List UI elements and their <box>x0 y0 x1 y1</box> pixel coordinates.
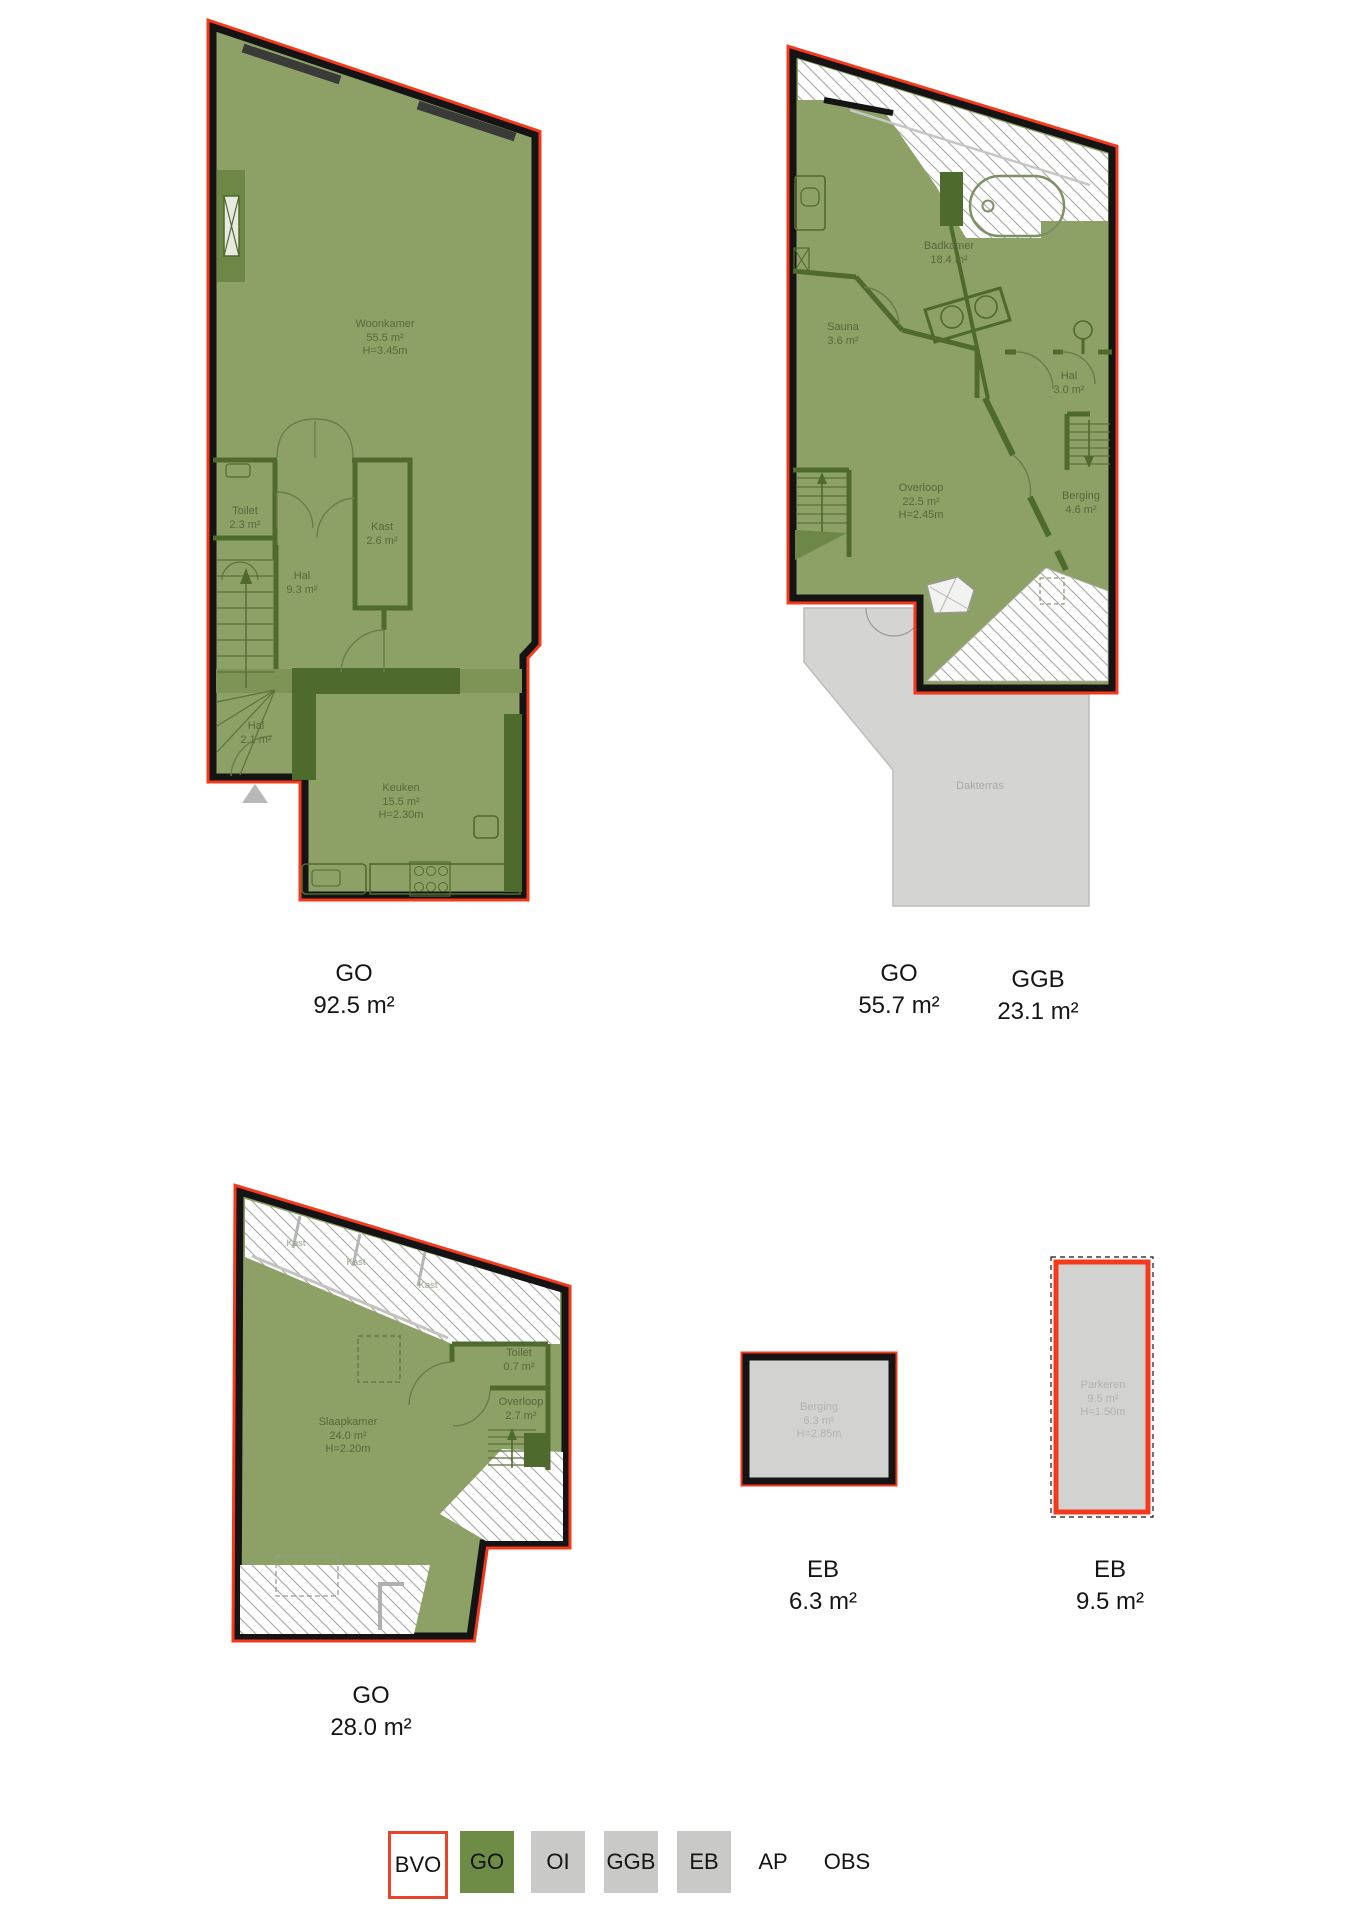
room-label-parkeren: Parkeren 9.5 m² H=1.50m <box>1081 1379 1126 1420</box>
legend-item-obs: OBS <box>820 1831 874 1893</box>
room-label-berging-2: Berging 6.3 m² H=2.85m <box>797 1401 842 1442</box>
legend-item-oi: OI <box>531 1831 585 1893</box>
room-label-keuken: Keuken 15.5 m² H=2.30m <box>379 782 424 823</box>
legend-item-go: GO <box>460 1831 514 1893</box>
room-label-hal-1: Hal 9.3 m² <box>286 570 317 597</box>
legend-item-ggb: GGB <box>604 1831 658 1893</box>
room-label-berging-1: Berging 4.6 m² <box>1062 490 1100 517</box>
north-arrow-icon <box>242 784 268 803</box>
measurement-report-page: Woonkamer 55.5 m² H=3.45m Toilet 2.3 m² … <box>0 0 1358 1920</box>
floor-plan-2 <box>793 53 1112 906</box>
room-label-dakterras: Dakterras <box>956 780 1004 794</box>
room-label-toilet-2: Toilet 0.7 m² <box>503 1347 534 1374</box>
room-label-kast-c: Kast <box>418 1279 437 1293</box>
room-label-hal-3: Hal 3.0 m² <box>1053 370 1084 397</box>
legend-item-bvo: BVO <box>388 1831 448 1899</box>
room-label-hal-2: Hal 2.1 m² <box>240 720 271 747</box>
caption-eb-2: EB 9.5 m² <box>1076 1554 1144 1618</box>
caption-go-3: GO 28.0 m² <box>330 1680 411 1744</box>
room-label-kast: Kast 2.6 m² <box>366 521 397 548</box>
caption-ggb: GGB 23.1 m² <box>997 964 1078 1028</box>
room-label-woonkamer: Woonkamer 55.5 m² H=3.45m <box>355 318 414 359</box>
room-label-slaapkamer: Slaapkamer 24.0 m² H=2.20m <box>319 1416 378 1457</box>
room-label-toilet-1: Toilet 2.3 m² <box>229 505 260 532</box>
room-label-badkamer: Badkamer 18.4 m² <box>924 240 974 267</box>
legend-item-ap: AP <box>746 1831 800 1893</box>
floorplans-canvas <box>0 0 1358 1920</box>
room-label-kast-b: Kast <box>346 1256 365 1270</box>
room-label-sauna: Sauna 3.6 m² <box>827 321 859 348</box>
caption-go-1: GO 92.5 m² <box>313 958 394 1022</box>
room-label-kast-a: Kast <box>286 1237 305 1251</box>
floor-plan-1 <box>213 27 535 896</box>
room-label-overloop-2: Overloop 2.7 m² <box>499 1396 544 1423</box>
caption-eb-1: EB 6.3 m² <box>789 1554 857 1618</box>
room-label-overloop-1: Overloop 22.5 m² H=2.45m <box>899 482 944 523</box>
legend-item-eb: EB <box>677 1831 731 1893</box>
caption-go-2: GO 55.7 m² <box>858 958 939 1022</box>
